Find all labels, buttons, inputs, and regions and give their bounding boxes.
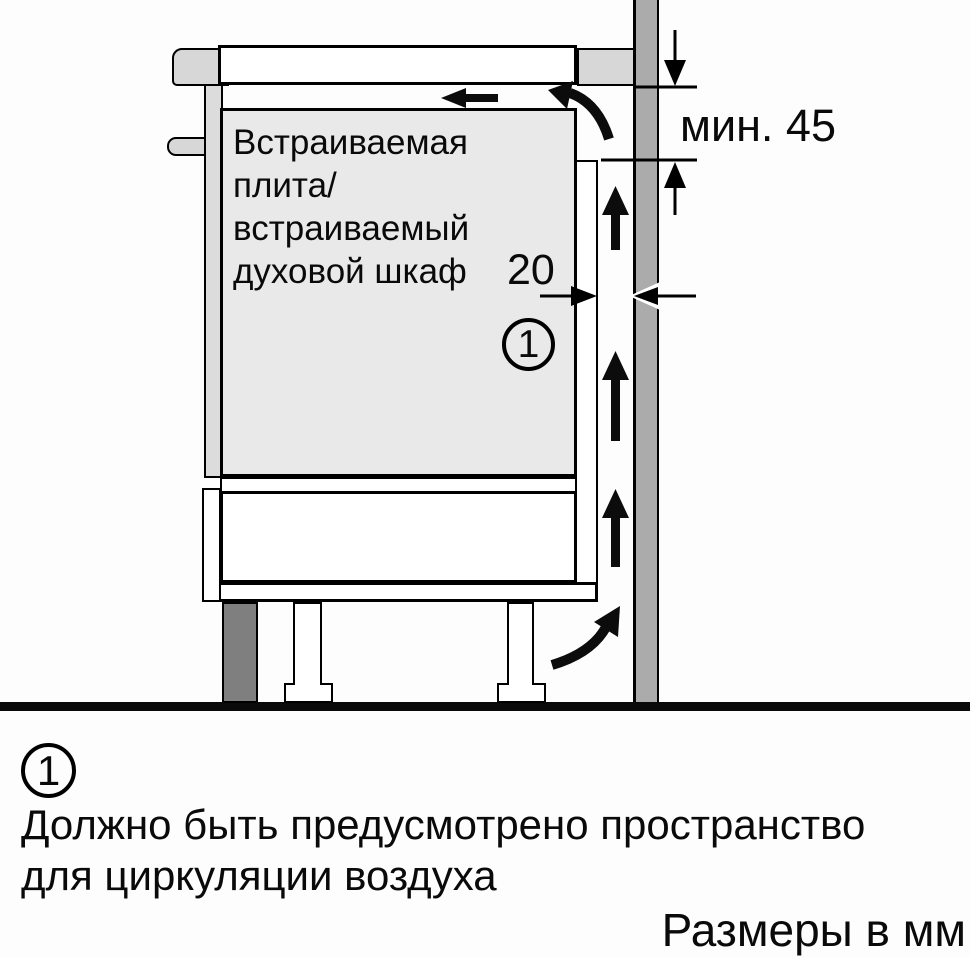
airflow-left-arrow-icon: [441, 88, 498, 108]
airflow-up-arrow-icon: [602, 186, 629, 250]
appliance-label: Встраиваемая плита/ встраиваемый духовой…: [233, 121, 469, 293]
drawer-front-strip: [202, 488, 221, 602]
worktop-rear-section: [577, 48, 635, 86]
legend-note-line: для циркуляции воздуха: [21, 850, 956, 901]
airflow-curved-arrow-bottom-icon: [552, 606, 620, 665]
airflow-up-arrow-icon: [602, 489, 629, 567]
adjustable-foot-base: [284, 683, 333, 703]
oven-handle-tab: [167, 137, 209, 156]
airflow-up-arrow-icon: [602, 351, 629, 441]
plinth: [222, 602, 258, 703]
callout-1-badge: 1: [502, 318, 555, 371]
appliance-label-line: Встраиваемая: [233, 121, 469, 164]
callout-number: 1: [518, 323, 540, 367]
legend-note-line: Должно быть предусмотрено пространство: [21, 799, 956, 850]
wall: [633, 0, 659, 703]
appliance-label-line: плита/: [233, 164, 469, 207]
cabinet-rear-panel: [575, 160, 598, 602]
units-label: Размеры в мм: [650, 903, 966, 957]
legend-callout-1-badge: 1: [21, 743, 76, 798]
installation-diagram: Встраиваемая плита/ встраиваемый духовой…: [0, 0, 970, 957]
cabinet-bottom-panel: [218, 582, 598, 602]
min-clearance-label: мин. 45: [680, 100, 836, 152]
adjustable-foot-stem: [293, 602, 322, 685]
dim-arrow-down-icon: [664, 30, 686, 86]
appliance-label-line: духовой шкаф: [233, 250, 469, 293]
dim-arrow-up-icon: [664, 162, 686, 215]
rear-gap-label: 20: [507, 246, 555, 295]
adjustable-foot-base: [497, 683, 546, 703]
drawer-compartment: [220, 491, 577, 583]
floor-line: [0, 702, 970, 711]
legend-note: Должно быть предусмотрено пространство д…: [21, 799, 956, 901]
hob-body: [218, 45, 577, 85]
legend-callout-number: 1: [37, 747, 60, 795]
appliance-label-line: встраиваемый: [233, 207, 469, 250]
adjustable-foot-stem: [507, 602, 534, 685]
